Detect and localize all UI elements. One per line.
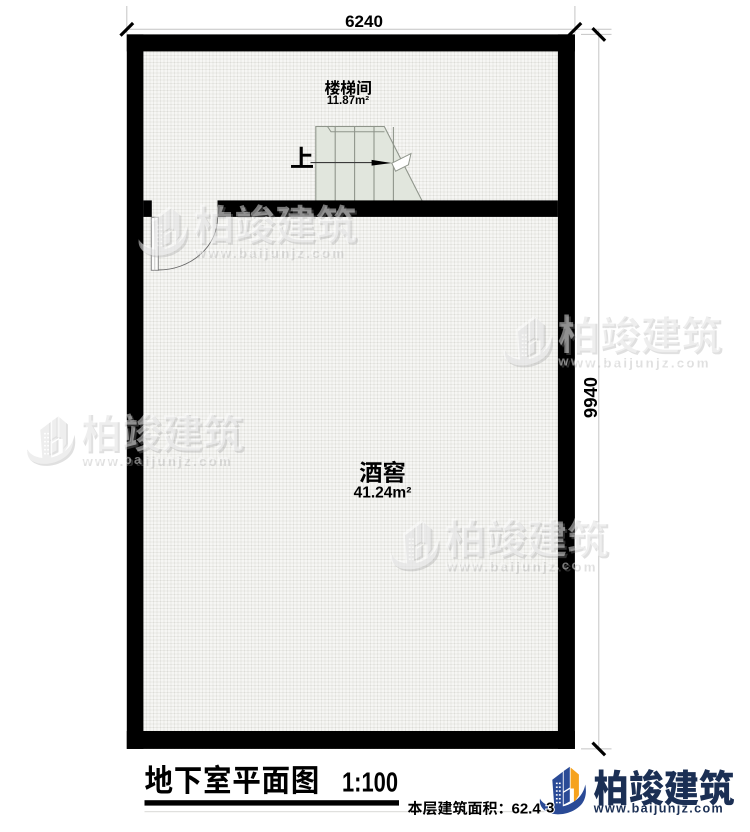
svg-text:3: 3 bbox=[546, 800, 554, 817]
svg-text:1:100: 1:100 bbox=[342, 766, 398, 797]
svg-text:6240: 6240 bbox=[345, 12, 383, 31]
svg-text:41.24m²: 41.24m² bbox=[354, 485, 412, 502]
svg-text:www.baijunjz.com: www.baijunjz.com bbox=[593, 802, 724, 816]
svg-text:62.4: 62.4 bbox=[512, 801, 542, 818]
svg-text:9940: 9940 bbox=[580, 377, 601, 418]
svg-text:11.87m²: 11.87m² bbox=[327, 95, 369, 107]
